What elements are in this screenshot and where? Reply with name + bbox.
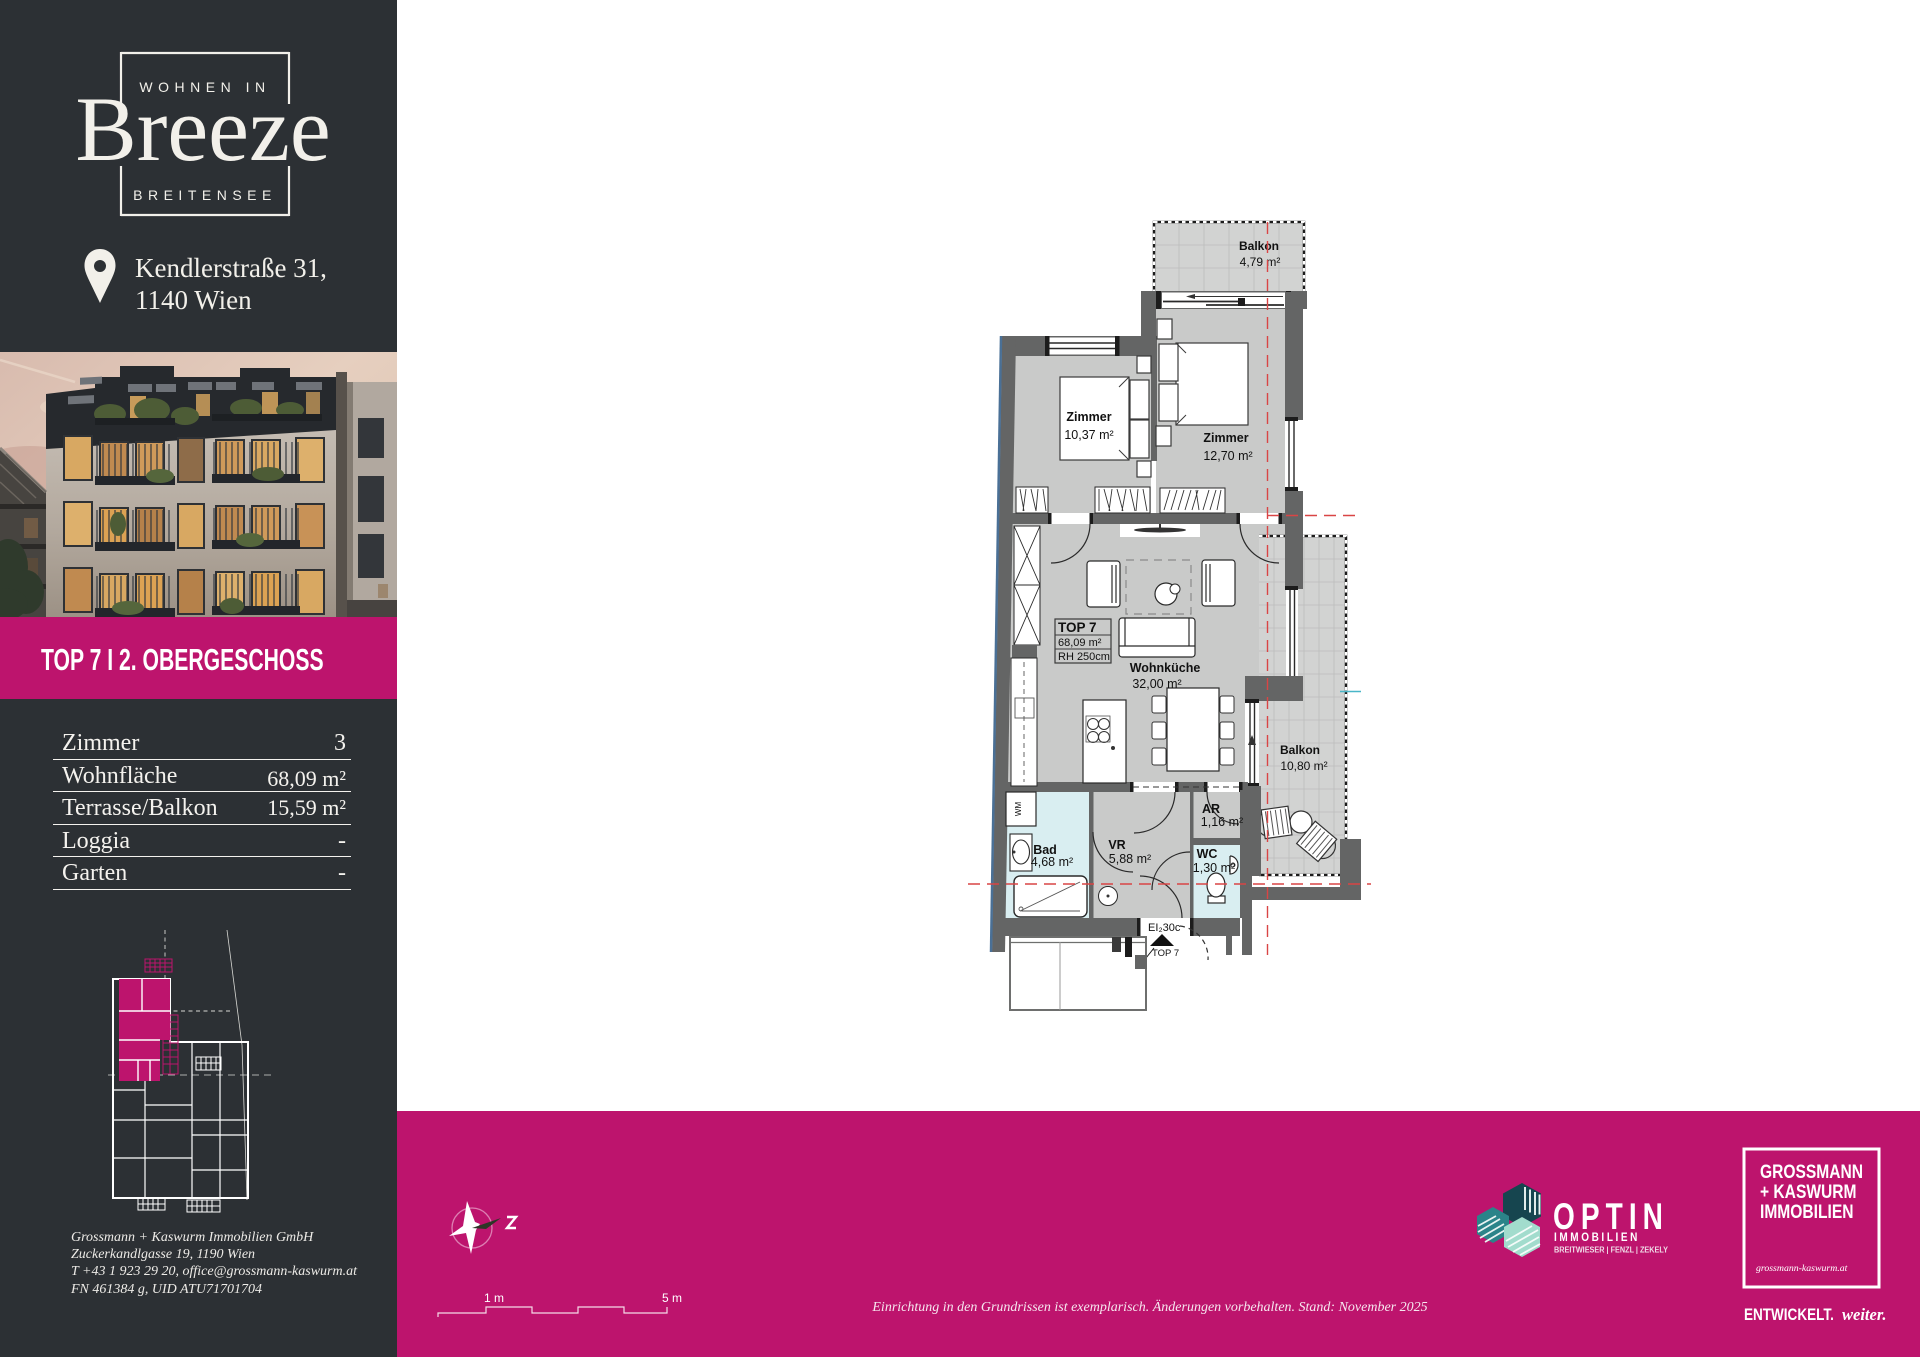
- svg-text:TOP 7: TOP 7: [1152, 948, 1179, 959]
- svg-text:4,68 m²: 4,68 m²: [1031, 855, 1073, 869]
- svg-text:Zimmer: Zimmer: [1066, 410, 1111, 424]
- svg-text:12,70 m²: 12,70 m²: [1203, 449, 1252, 463]
- svg-text:WC: WC: [1197, 847, 1218, 861]
- svg-text:10,80 m²: 10,80 m²: [1280, 759, 1327, 773]
- svg-text:WM: WM: [1014, 802, 1023, 817]
- svg-text:4,79 m²: 4,79 m²: [1240, 255, 1281, 269]
- svg-text:1,16 m²: 1,16 m²: [1201, 815, 1243, 829]
- svg-text:32,00 m²: 32,00 m²: [1132, 677, 1181, 691]
- svg-text:TOP 7: TOP 7: [1058, 620, 1097, 635]
- svg-text:10,37 m²: 10,37 m²: [1064, 428, 1113, 442]
- svg-text:Balkon: Balkon: [1239, 239, 1279, 253]
- svg-text:RH 250cm: RH 250cm: [1058, 651, 1110, 663]
- svg-text:EI₂30c: EI₂30c: [1148, 922, 1181, 934]
- svg-text:1,30 m²: 1,30 m²: [1193, 861, 1235, 875]
- svg-text:68,09 m²: 68,09 m²: [1058, 637, 1102, 649]
- svg-text:AR: AR: [1202, 802, 1220, 816]
- svg-text:Zimmer: Zimmer: [1203, 431, 1248, 445]
- svg-text:Wohnküche: Wohnküche: [1130, 661, 1201, 675]
- svg-text:5,88 m²: 5,88 m²: [1109, 852, 1151, 866]
- svg-text:Balkon: Balkon: [1280, 743, 1320, 757]
- svg-text:VR: VR: [1108, 838, 1125, 852]
